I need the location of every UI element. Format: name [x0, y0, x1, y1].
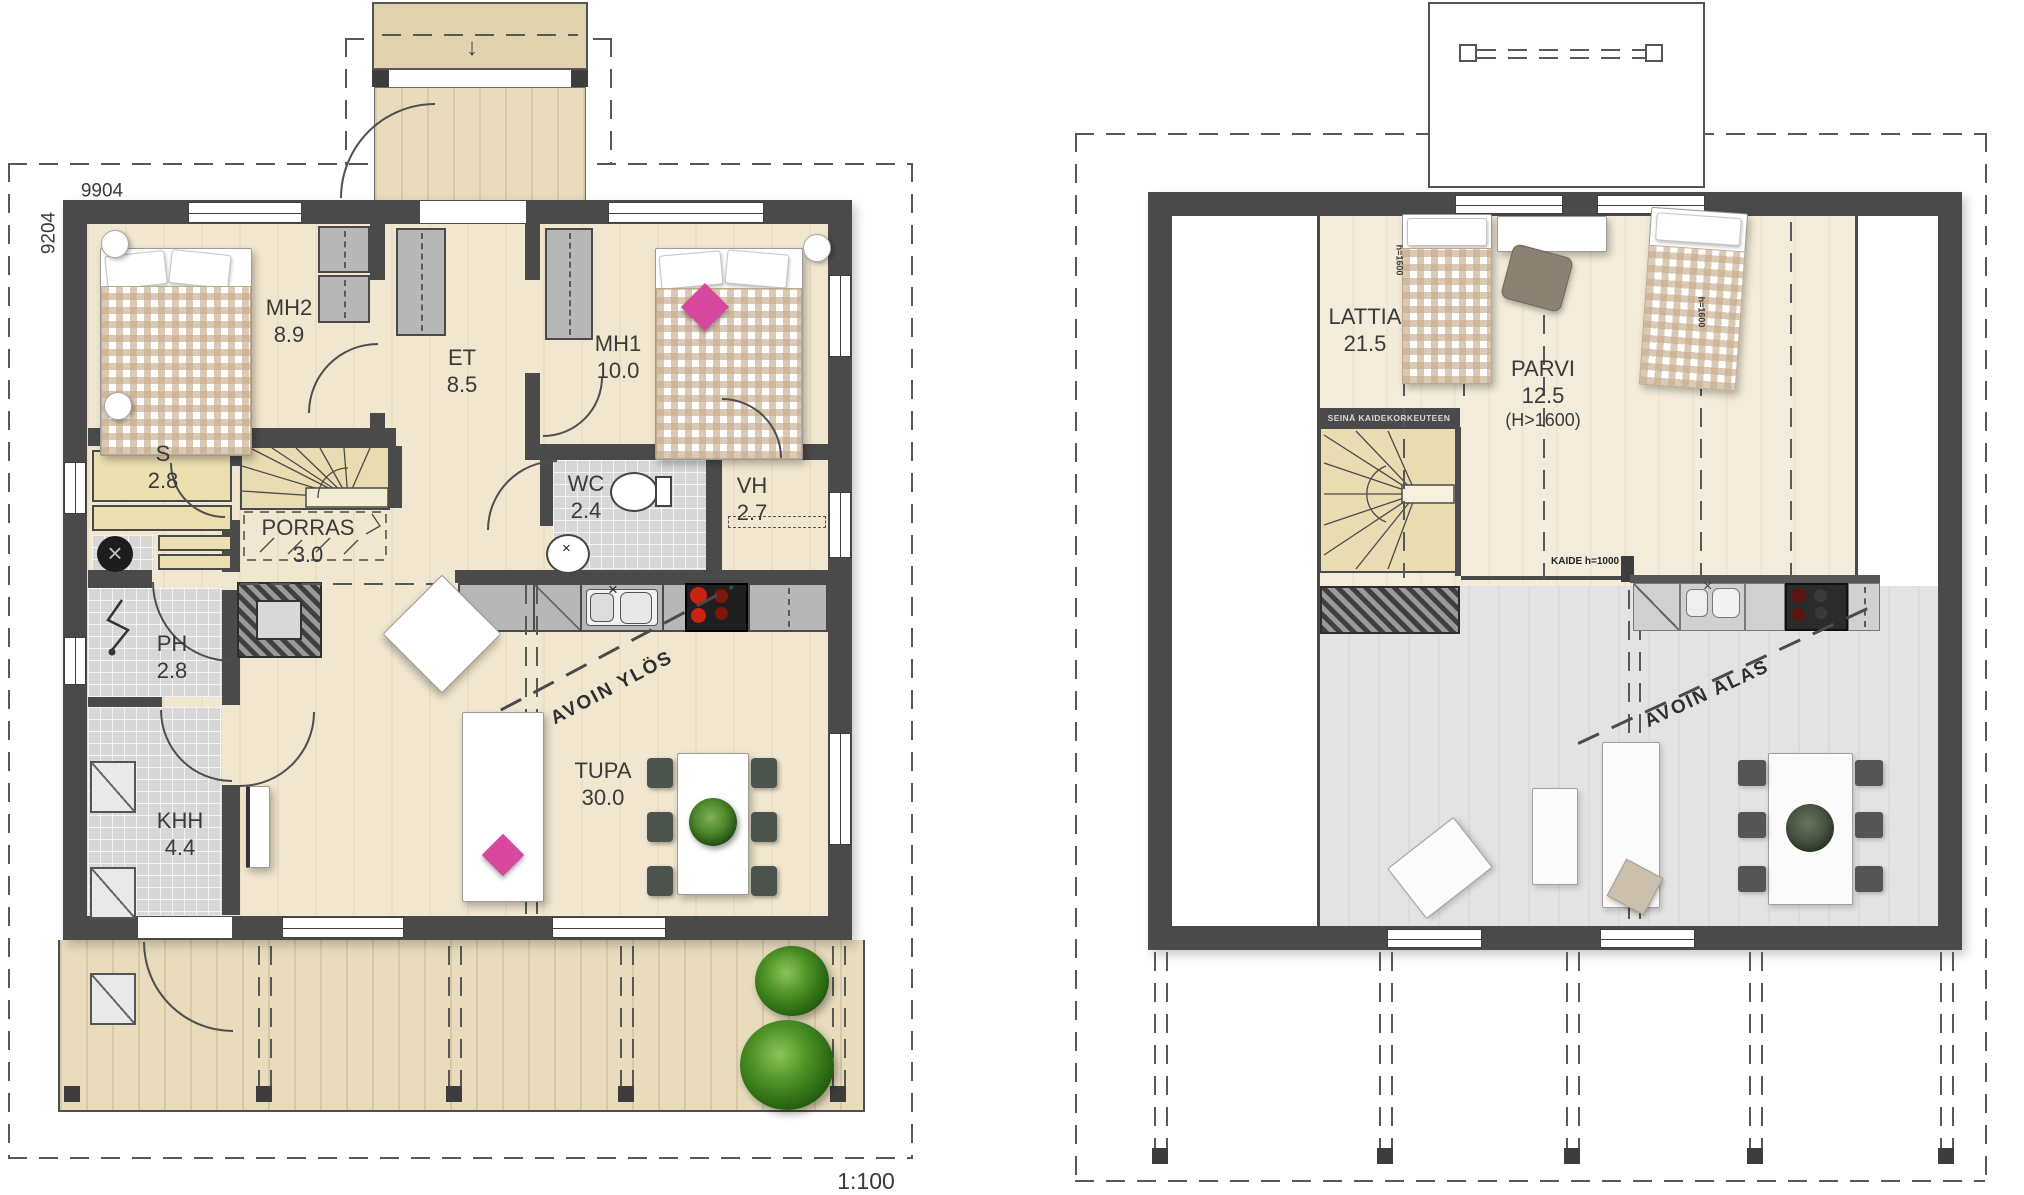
floor-plan-sheet: { "meta": { "scale_label": "1:100", "wid… [0, 0, 2024, 1194]
wall [222, 785, 240, 915]
window [1600, 929, 1695, 948]
room-label-s: S 2.8 [148, 441, 179, 495]
terrace-post-line [258, 946, 260, 1086]
room-label-mh1: MH1 10.0 [595, 331, 641, 385]
stove-burner [691, 608, 706, 623]
room-name: WC [568, 471, 605, 498]
sauna-bench [158, 554, 232, 570]
terrace-post-line [270, 946, 272, 1086]
chimney-shaft [1428, 2, 1705, 188]
roof-slope-arrow: ↓ [466, 34, 478, 62]
bedside-stool [101, 230, 129, 258]
post-line [1578, 952, 1580, 1148]
room-area: 2.8 [148, 468, 179, 495]
room-name: MH1 [595, 331, 641, 358]
terrace-post-line [620, 946, 622, 1086]
post-line [1391, 952, 1393, 1148]
toilet-icon [610, 472, 658, 512]
shower-icon [100, 598, 140, 658]
ridge-line [1477, 57, 1645, 59]
dining-chair [647, 866, 673, 896]
bush [740, 1020, 834, 1110]
ghost-kitchen-cabinet [1633, 583, 1680, 631]
height-marker-right: h=1600 [1696, 297, 1707, 328]
porch-roof-dash [382, 34, 578, 36]
terrace-post-line [844, 946, 846, 1086]
room-name: PORRAS [262, 515, 355, 542]
window [188, 202, 302, 223]
post-line [1952, 952, 1954, 1148]
post-line [1166, 952, 1168, 1148]
kitchen-corner-cabinet [533, 583, 582, 632]
ghost-kitchen-edge [1630, 575, 1880, 583]
room-label-wc: WC 2.4 [568, 471, 605, 525]
post [1938, 1148, 1954, 1164]
bed-pillow [1655, 212, 1742, 246]
dimension-width: 9904 [81, 179, 123, 202]
washer [90, 867, 136, 919]
ghost-faucet-icon: × [1703, 578, 1712, 596]
room-area: 8.9 [266, 322, 312, 349]
room-label-lattia: LATTIA 21.5 [1329, 304, 1402, 358]
kitchen-cabinet [748, 583, 828, 632]
room-name: MH2 [266, 295, 312, 322]
knee-wall [1855, 216, 1858, 588]
stair-side-wall [1455, 427, 1461, 576]
window [64, 462, 86, 514]
post-line [1761, 952, 1763, 1148]
roof-outline-right [1985, 133, 1987, 1180]
wall [525, 224, 540, 280]
bed-pillow [725, 249, 790, 288]
terrace-post [446, 1086, 462, 1102]
closet [545, 228, 593, 340]
bed-blanket [1402, 248, 1492, 384]
terrace-post-line [448, 946, 450, 1086]
wall [706, 460, 722, 570]
faucet-icon: × [608, 580, 618, 600]
porch-outline-left [345, 38, 347, 165]
room-height-note: (H>1600) [1505, 410, 1581, 432]
bed-blanket [101, 286, 251, 455]
room-label-tupa: TUPA 30.0 [574, 758, 631, 812]
window [64, 637, 86, 685]
dining-chair [751, 758, 777, 788]
ground-floor-plan: ↓ × [0, 0, 1000, 1194]
post-line [1940, 952, 1942, 1148]
window [829, 492, 851, 558]
bed-pillow [1407, 218, 1487, 246]
room-label-ph: PH 2.8 [157, 631, 188, 685]
terrace-post [256, 1086, 272, 1102]
roof-outline-bottom [1075, 1180, 1985, 1182]
dining-chair [751, 812, 777, 842]
closet [396, 228, 446, 336]
room-name: LATTIA [1329, 304, 1402, 331]
upper-floor-plan: SEINÄ KAIDEKORKEUTEEN × [1000, 0, 2024, 1194]
room-area: 2.7 [737, 500, 768, 527]
terrace-post [618, 1086, 634, 1102]
bed-pillow [659, 250, 724, 289]
ghost-kitchen-cabinet [1848, 583, 1880, 631]
post-line [1566, 952, 1568, 1148]
dimension-depth: 9204 [37, 212, 60, 254]
ghost-coffee-table [1532, 788, 1578, 885]
stove-burner [715, 607, 728, 620]
ghost-dining-chair [1738, 812, 1766, 838]
ghost-stove-burner [1791, 588, 1806, 603]
ghost-dining-chair [1738, 760, 1766, 786]
window [1387, 929, 1482, 948]
ghost-dining-chair [1855, 760, 1883, 786]
open-above-line [240, 583, 455, 585]
stair-wall-label: SEINÄ KAIDEKORKEUTEEN [1328, 413, 1451, 423]
bedside-stool [104, 392, 132, 420]
roof-outline-bottom [8, 1157, 913, 1159]
kitchen-half-wall [455, 570, 828, 583]
terrace-post-line [460, 946, 462, 1086]
wall [222, 697, 240, 705]
bedside-stool [803, 234, 831, 262]
bed-blanket [1639, 245, 1746, 391]
roof-outline-left [8, 163, 10, 1157]
wall [388, 446, 402, 508]
room-name: PH [157, 631, 188, 658]
kitchen-cabinet [662, 583, 687, 632]
room-area: 30.0 [574, 785, 631, 812]
terrace-post [64, 1086, 80, 1102]
front-door-swing [340, 103, 435, 198]
toilet-tank [655, 476, 672, 507]
wall [88, 697, 162, 707]
chimney-hatch [1320, 586, 1460, 634]
ghost-dining-chair [1855, 812, 1883, 838]
room-area: 8.5 [447, 372, 478, 399]
fireplace-hearth [256, 600, 302, 640]
room-label-porras: PORRAS 3.0 [262, 515, 355, 569]
room-label-et: ET 8.5 [447, 345, 478, 399]
ghost-stove-burner [1815, 607, 1827, 619]
room-label-khh: KHH 4.4 [157, 808, 203, 862]
ghost-stove-burner [1814, 589, 1827, 602]
washer [90, 973, 136, 1025]
basin-faucet-icon: × [562, 540, 571, 557]
ridge-line [1477, 49, 1645, 51]
post-line [1154, 952, 1156, 1148]
post [1377, 1148, 1393, 1164]
post-line [1379, 952, 1381, 1148]
bed-pillow [168, 249, 231, 289]
ghost-stove-burner [1792, 608, 1805, 621]
window [282, 917, 404, 938]
front-door-opening [420, 201, 526, 223]
room-area: 2.8 [157, 658, 188, 685]
closet [318, 275, 370, 323]
post [1564, 1148, 1580, 1164]
post [1152, 1148, 1168, 1164]
ghost-kitchen-cabinet [1745, 583, 1785, 631]
room-name: ET [447, 345, 478, 372]
tv-bench [246, 786, 270, 868]
ghost-dining-chair [1855, 866, 1883, 892]
room-label-vh: VH 2.7 [737, 473, 768, 527]
ghost-dining-chair [1738, 866, 1766, 892]
railing-label: KAIDE h=1000 [1551, 556, 1619, 567]
room-area: 21.5 [1329, 331, 1402, 358]
window [552, 917, 666, 938]
post [1747, 1148, 1763, 1164]
room-label-parvi: PARVI 12.5 (H>1600) [1505, 356, 1581, 432]
post-line [1749, 952, 1751, 1148]
window [829, 733, 851, 845]
dining-chair [647, 812, 673, 842]
porch-post [372, 70, 389, 87]
room-label-mh2: MH2 8.9 [266, 295, 312, 349]
room-area: 3.0 [262, 542, 355, 569]
ridge-end-box [1459, 44, 1477, 62]
window [608, 202, 764, 223]
washer [90, 761, 136, 813]
ridge-end-box [1645, 44, 1663, 62]
window [829, 275, 851, 357]
terrace-post-line [632, 946, 634, 1086]
sauna-heater-icon: × [97, 536, 133, 572]
height-marker-left: h=1600 [1394, 245, 1405, 276]
room-area: 4.4 [157, 835, 203, 862]
room-area: 12.5 [1505, 383, 1581, 410]
roof-outline-right [911, 163, 913, 1157]
terrace-door-opening [138, 917, 232, 938]
porch-post [571, 70, 588, 87]
room-name: TUPA [574, 758, 631, 785]
window [1455, 195, 1563, 214]
table-plant [689, 798, 737, 846]
wall [525, 373, 540, 444]
wall [370, 413, 385, 446]
room-area: 2.4 [568, 498, 605, 525]
wall [88, 570, 152, 588]
staircase-upper [1320, 427, 1460, 574]
bush [755, 946, 829, 1016]
dining-chair [647, 758, 673, 788]
height-line [1790, 222, 1792, 578]
ghost-table-plant [1786, 804, 1834, 852]
terrace-post [830, 1086, 846, 1102]
porch-roof [372, 2, 588, 70]
room-name: KHH [157, 808, 203, 835]
dining-chair [751, 866, 777, 896]
loft-railing [1461, 576, 1623, 580]
wall [370, 224, 385, 280]
room-area: 10.0 [595, 358, 641, 385]
sink-basin [620, 592, 652, 624]
room-name: PARVI [1505, 356, 1581, 383]
closet [318, 226, 370, 273]
ghost-sink-basin [1712, 588, 1740, 618]
roof-outline-left [1075, 133, 1077, 1180]
room-name: S [148, 441, 179, 468]
room-name: VH [737, 473, 768, 500]
sauna-bench [158, 535, 232, 551]
bed-rotated [1639, 207, 1748, 391]
scale-label: 1:100 [837, 1167, 895, 1195]
porch-outline-right [610, 38, 612, 165]
